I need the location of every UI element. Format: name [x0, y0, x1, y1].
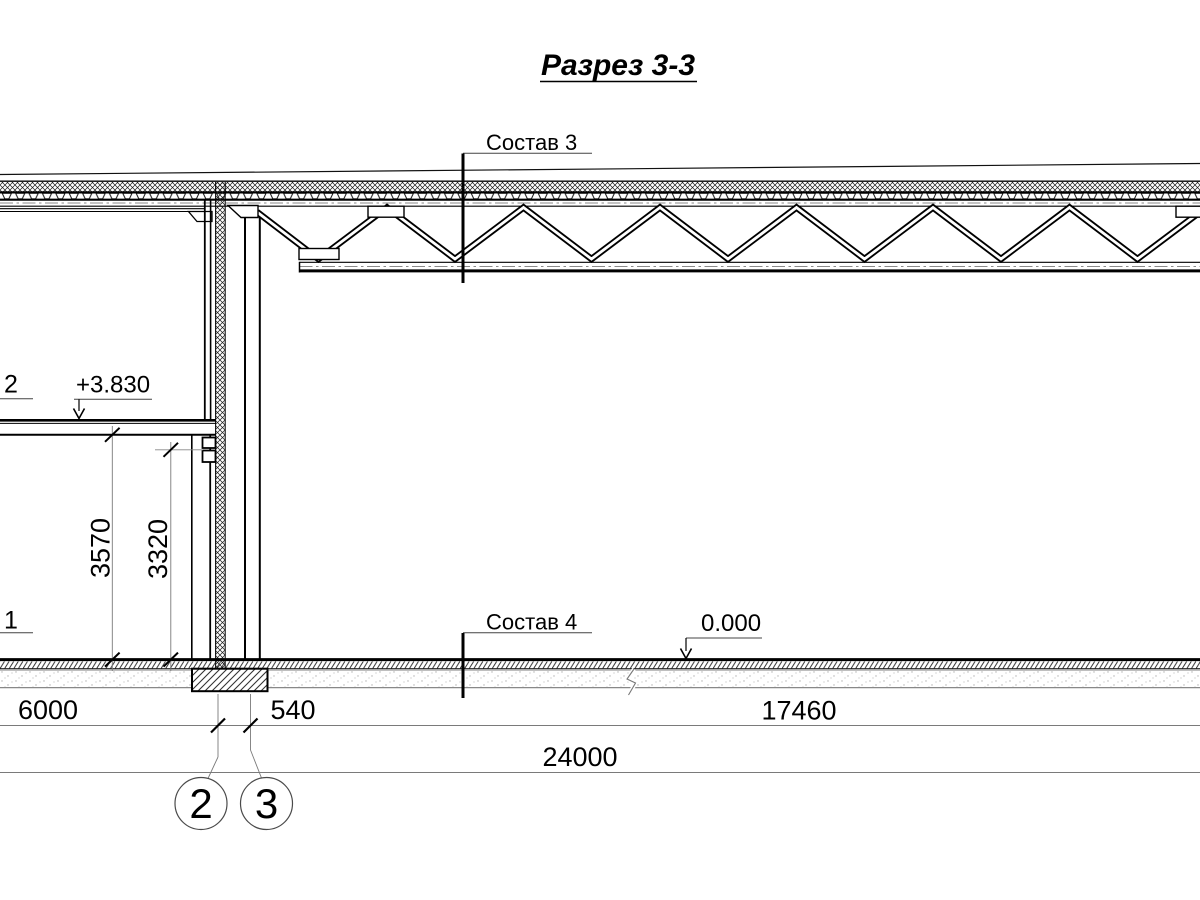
wall-axis-2 [155, 182, 225, 668]
beam-seat-plate [203, 438, 216, 449]
ground-slab [0, 660, 1200, 695]
drawing-title: Разрез 3-3 [541, 49, 695, 82]
elevation-mark-0000: 0.000 [681, 610, 763, 659]
roof-surface-line [0, 164, 1200, 175]
truss-gusset-plate [1176, 206, 1200, 217]
section-cut-left-lower: 1 [0, 607, 33, 635]
section-drawing-sheet: Состав 3 Состав 4 2 1 +3.830 0.000 3570 … [0, 0, 1200, 900]
sostav3-label: Состав 3 [486, 130, 577, 155]
grid-axes: 2 3 [175, 750, 293, 830]
dim-6000: 6000 [18, 695, 78, 725]
cut-label-1: 1 [4, 607, 18, 635]
dim-540: 540 [270, 695, 315, 725]
dim-3320: 3320 [143, 519, 173, 579]
axis-number-2: 2 [189, 780, 212, 827]
beam-seat-plate [203, 451, 216, 463]
elevation-value-upper: +3.830 [76, 372, 150, 399]
horizontal-dimensions: 6000 540 17460 24000 [0, 694, 1200, 773]
subgrade-stipple-band [0, 670, 1200, 687]
dim-17460: 17460 [761, 696, 836, 726]
sostav4-label: Состав 4 [486, 610, 577, 635]
elevation-value-zero: 0.000 [701, 610, 761, 637]
elevation-mark-3830: +3.830 [74, 372, 153, 419]
dim-24000: 24000 [542, 742, 617, 772]
steel-truss [189, 206, 1200, 273]
upper-floor-slab [0, 420, 216, 435]
slab-hatch-band [0, 661, 1200, 668]
cut-label-2: 2 [4, 371, 18, 399]
roof-deck-ribs [0, 193, 1200, 199]
truss-gusset-plate [368, 206, 404, 217]
vertical-dimensions: 3570 3320 [86, 426, 179, 671]
axis-number-3: 3 [255, 780, 278, 827]
roof-insulation-hatch [0, 182, 1200, 192]
truss-gusset-plate [299, 249, 339, 260]
foundation-block [192, 669, 268, 692]
truss-support-bracket [228, 206, 258, 218]
column-axis-3 [245, 218, 260, 660]
section-cut-left-upper: 2 [0, 371, 33, 399]
drawing-title-block: Разрез 3-3 [540, 49, 697, 82]
roof-assembly [0, 164, 1200, 212]
dim-3570: 3570 [86, 518, 116, 578]
wall-insulation-strip [216, 182, 226, 668]
section-3-3-drawing: Состав 3 Состав 4 2 1 +3.830 0.000 3570 … [0, 0, 1200, 900]
beam-bracket [189, 212, 213, 222]
